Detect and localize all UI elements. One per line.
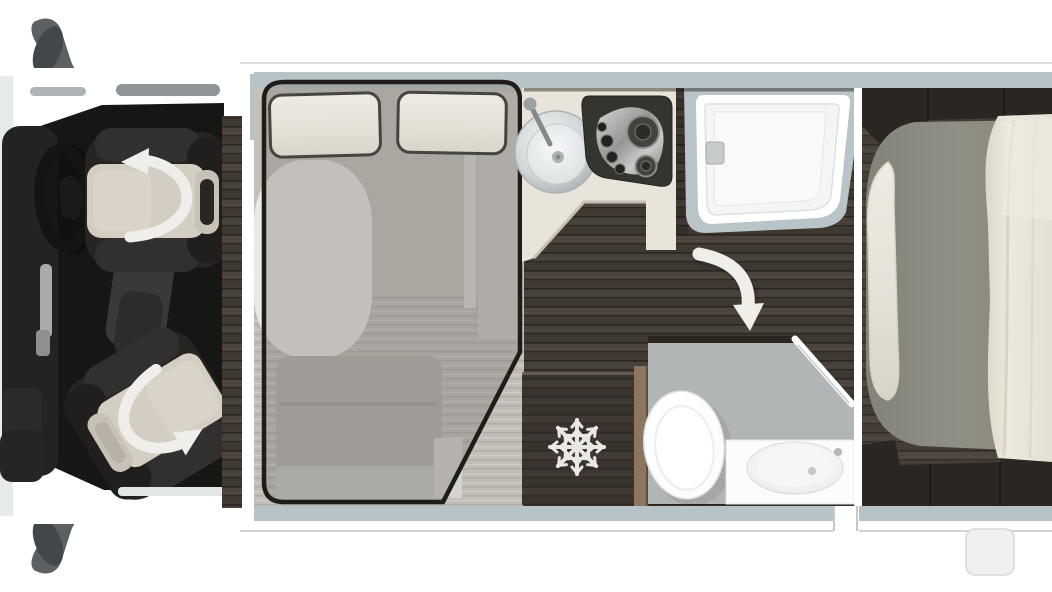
pillow	[269, 93, 381, 158]
dash-vent	[30, 87, 86, 96]
floor-plan-canvas	[0, 0, 1052, 592]
pillow	[397, 92, 506, 154]
drain-icon	[706, 142, 724, 164]
bed-pillow	[868, 162, 899, 400]
bottom-wall	[254, 505, 1052, 521]
wall-seam	[524, 88, 854, 92]
snowflake-icon	[550, 420, 604, 474]
exterior-step	[966, 529, 1014, 575]
washroom-wall	[648, 336, 798, 343]
floor-plan-page	[0, 0, 1052, 592]
basin-faucet-icon	[834, 448, 842, 456]
dash-vent	[116, 84, 220, 96]
bedroom-partition	[854, 88, 862, 506]
front-cabinet-strip	[222, 116, 244, 508]
refrigerator	[522, 372, 634, 506]
entry-door-opening	[833, 502, 859, 533]
hob	[582, 96, 672, 186]
cab	[0, 19, 252, 574]
cab-step	[118, 487, 230, 496]
bedroom	[862, 88, 1052, 506]
lounge-dinette	[254, 82, 524, 506]
driver-swivel-seat	[85, 128, 231, 272]
shower-cubicle	[684, 88, 858, 233]
washbasin-counter	[726, 440, 854, 504]
